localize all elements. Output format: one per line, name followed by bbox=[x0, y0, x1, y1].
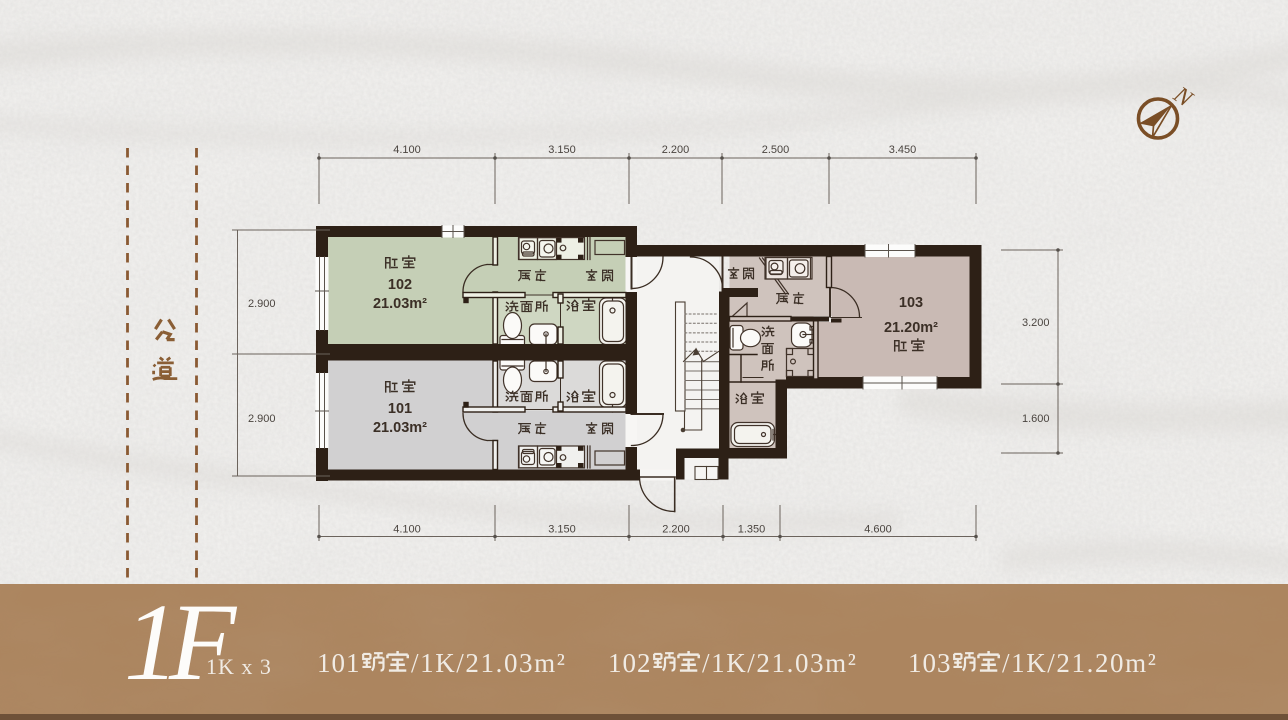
svg-text:101: 101 bbox=[388, 401, 412, 417]
svg-text:3.200: 3.200 bbox=[1022, 317, 1050, 329]
svg-text:2.200: 2.200 bbox=[662, 144, 690, 156]
svg-text:2.200: 2.200 bbox=[662, 524, 690, 536]
svg-text:102: 102 bbox=[608, 648, 652, 678]
svg-text:3.150: 3.150 bbox=[548, 144, 576, 156]
svg-text:3.150: 3.150 bbox=[548, 524, 576, 536]
svg-text:4.100: 4.100 bbox=[393, 524, 421, 536]
svg-text:1K x 3: 1K x 3 bbox=[206, 654, 272, 679]
svg-text:101: 101 bbox=[317, 648, 361, 678]
svg-text:2.900: 2.900 bbox=[248, 298, 276, 310]
svg-text:21.03m²: 21.03m² bbox=[373, 420, 427, 436]
svg-text:1.600: 1.600 bbox=[1022, 413, 1050, 425]
svg-text:/1K/21.03m²: /1K/21.03m² bbox=[702, 648, 857, 678]
svg-text:4.600: 4.600 bbox=[864, 524, 892, 536]
svg-text:4.100: 4.100 bbox=[393, 144, 421, 156]
svg-text:103: 103 bbox=[908, 648, 952, 678]
svg-text:21.20m²: 21.20m² bbox=[884, 320, 938, 336]
svg-text:21.03m²: 21.03m² bbox=[373, 296, 427, 312]
svg-text:2.500: 2.500 bbox=[762, 144, 790, 156]
svg-text:1.350: 1.350 bbox=[738, 524, 766, 536]
svg-text:/1K/21.20m²: /1K/21.20m² bbox=[1002, 648, 1157, 678]
svg-text:103: 103 bbox=[899, 295, 923, 311]
svg-text:102: 102 bbox=[388, 277, 412, 293]
svg-text:2.900: 2.900 bbox=[248, 413, 276, 425]
svg-text:3.450: 3.450 bbox=[889, 144, 917, 156]
svg-text:/1K/21.03m²: /1K/21.03m² bbox=[411, 648, 566, 678]
svg-text:1F: 1F bbox=[124, 581, 238, 703]
